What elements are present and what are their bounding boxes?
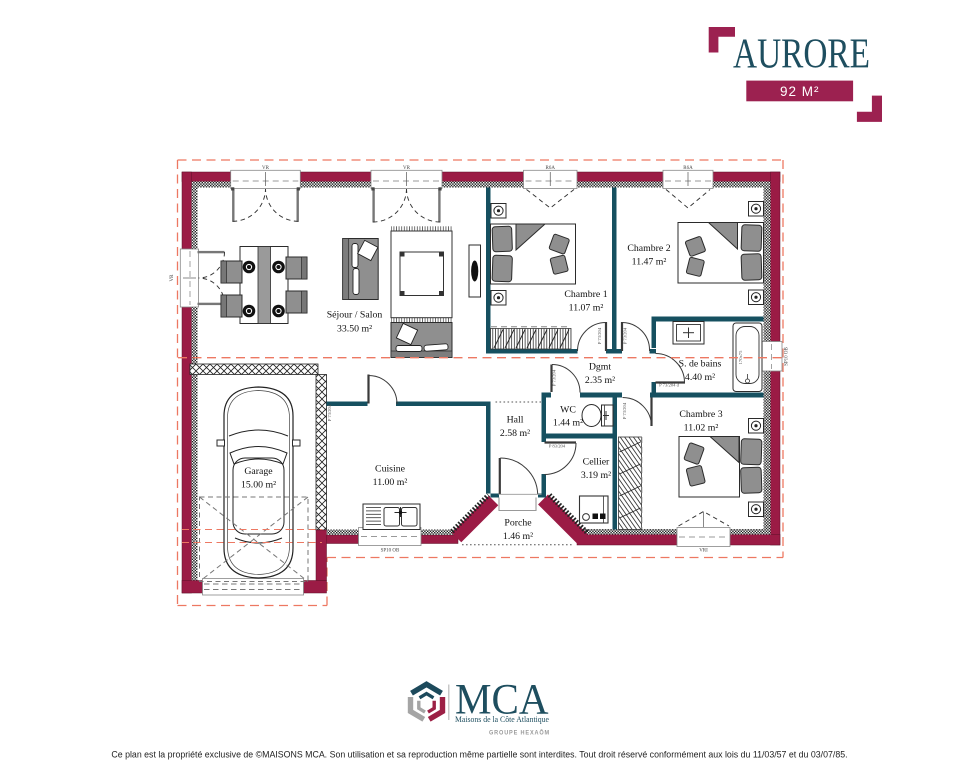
svg-text:1.44 m²: 1.44 m² <box>553 418 583 429</box>
svg-text:2.58 m²: 2.58 m² <box>500 428 530 439</box>
svg-text:SP10 OB: SP10 OB <box>785 346 790 365</box>
svg-text:GROUPE HEXAŌM: GROUPE HEXAŌM <box>489 728 550 736</box>
svg-text:Hall: Hall <box>507 415 524 426</box>
svg-text:15.00 m²: 15.00 m² <box>241 480 276 491</box>
svg-text:11.02 m²: 11.02 m² <box>684 423 719 434</box>
svg-text:33.50 m²: 33.50 m² <box>337 324 372 335</box>
svg-text:P 73/204: P 73/204 <box>597 327 602 344</box>
svg-text:P 73/204: P 73/204 <box>552 369 557 386</box>
svg-text:170x75: 170x75 <box>738 350 743 364</box>
svg-text:92 M²: 92 M² <box>780 84 820 99</box>
svg-text:4.40 m²: 4.40 m² <box>685 372 715 383</box>
svg-text:S. de bains: S. de bains <box>679 359 722 370</box>
svg-text:11.07 m²: 11.07 m² <box>569 303 604 314</box>
svg-text:SP10 OB: SP10 OB <box>381 549 400 554</box>
svg-text:P 73/204: P 73/204 <box>622 402 627 419</box>
svg-text:VR: VR <box>262 166 270 171</box>
svg-text:Maisons de la Côte Atlantique: Maisons de la Côte Atlantique <box>455 715 549 724</box>
svg-text:1.46 m²: 1.46 m² <box>503 531 533 542</box>
svg-text:R6A: R6A <box>683 166 693 171</box>
svg-text:Séjour / Salon: Séjour / Salon <box>327 310 383 321</box>
svg-text:Chambre 1: Chambre 1 <box>564 289 607 300</box>
svg-text:2.35 m²: 2.35 m² <box>585 375 615 386</box>
svg-text:VR: VR <box>403 166 411 171</box>
svg-text:AURORE: AURORE <box>733 32 870 78</box>
svg-text:P 73/204 d: P 73/204 d <box>659 383 679 388</box>
svg-text:P 83/204: P 83/204 <box>549 444 566 449</box>
svg-text:11.47 m²: 11.47 m² <box>632 257 667 268</box>
svg-text:R6A: R6A <box>546 166 556 171</box>
svg-text:3.19 m²: 3.19 m² <box>581 470 611 481</box>
svg-text:Ce plan est la propriété exclu: Ce plan est la propriété exclusive de ©M… <box>111 750 847 760</box>
svg-text:Garage: Garage <box>244 466 273 477</box>
svg-text:VR: VR <box>170 274 175 282</box>
svg-text:Cellier: Cellier <box>583 457 610 468</box>
svg-text:VRI: VRI <box>699 549 708 554</box>
svg-text:11.00 m²: 11.00 m² <box>373 477 408 488</box>
svg-text:Cuisine: Cuisine <box>375 464 406 475</box>
svg-text:Chambre 2: Chambre 2 <box>627 243 670 254</box>
svg-text:P 73/204: P 73/204 <box>327 404 332 421</box>
svg-text:WC: WC <box>560 405 576 416</box>
svg-text:Porche: Porche <box>504 518 532 529</box>
svg-text:P 73/204: P 73/204 <box>623 327 628 344</box>
svg-text:Chambre 3: Chambre 3 <box>679 409 722 420</box>
svg-text:Dgmt: Dgmt <box>589 362 612 373</box>
